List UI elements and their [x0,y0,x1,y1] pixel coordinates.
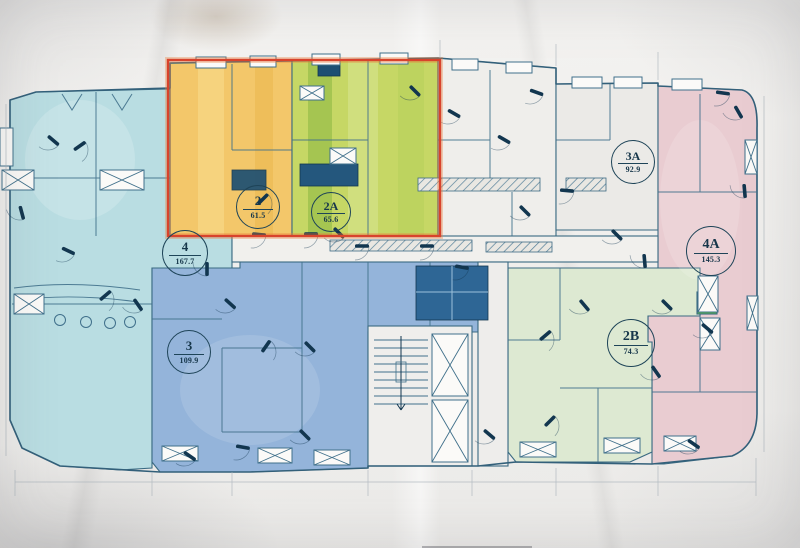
unit-number: 2 [255,194,262,207]
unit-number: 2A [324,200,339,212]
unit-area: 145.3 [702,256,721,264]
window-marker [572,77,602,88]
floor-plan-drawing [0,0,800,548]
photographed-floor-plan: 2 61.5 2A 65.6 2B 74.3 3 109.9 3A 92.9 4… [0,0,800,548]
window-marker [0,128,13,166]
unit-label-2: 2 61.5 [236,185,280,229]
window-marker [672,79,702,90]
window-marker [300,86,324,100]
window-marker [520,442,556,457]
window-marker [2,170,34,190]
unit-number: 4A [702,238,719,252]
unit-label-3: 3 109.9 [167,330,211,374]
window-marker [314,450,350,465]
label-divider [243,209,273,210]
window-marker [432,334,468,396]
unit-number: 3 [186,339,193,352]
window-marker [330,148,356,164]
window-marker [745,140,757,174]
window-marker [14,294,44,314]
unit-label-3a: 3A 92.9 [611,140,655,184]
window-marker [747,296,758,330]
center-unit-region [438,58,556,236]
window-marker [698,276,718,312]
unit-label-4a: 4A 145.3 [686,226,736,276]
unit-area: 167.7 [176,258,195,266]
unit-label-2a: 2A 65.6 [311,192,351,232]
window-marker [604,438,640,453]
label-divider [618,163,648,164]
unit-area: 65.6 [324,216,339,224]
window-marker [100,170,144,190]
window-marker [432,400,468,462]
unit-area: 61.5 [251,212,266,220]
unit-area: 109.9 [180,357,199,365]
window-marker [506,62,532,73]
unit-label-4: 4 167.7 [162,230,208,276]
table-edge-strip [64,544,422,548]
label-divider [169,255,201,256]
window-marker [258,448,292,463]
unit-area: 92.9 [626,166,641,174]
label-divider [317,213,344,214]
window-marker [614,77,642,88]
label-divider [174,354,204,355]
unit-area: 74.3 [624,348,639,356]
unit-number: 3A [626,150,641,162]
label-divider [694,253,729,254]
unit-number: 4 [182,240,189,253]
label-divider [614,345,647,346]
unit-label-2b: 2B 74.3 [607,319,655,367]
window-marker [452,59,478,70]
window-marker [700,318,720,350]
unit-number: 2B [623,330,639,344]
